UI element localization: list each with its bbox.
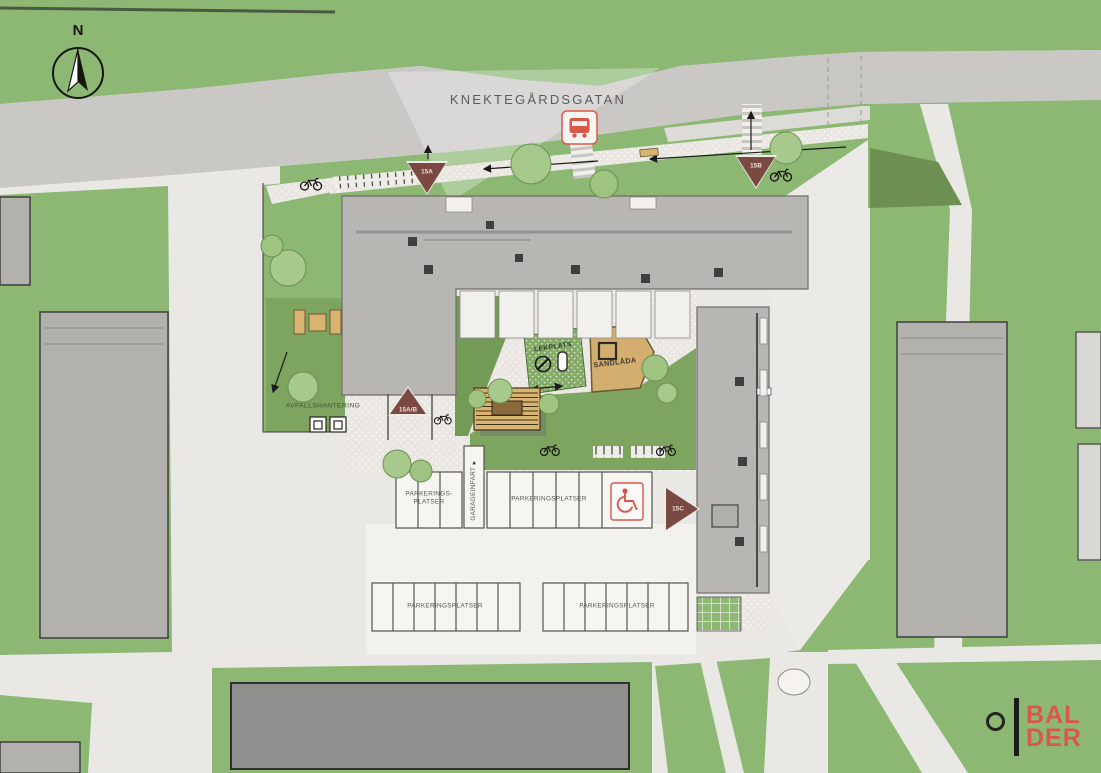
- picnic-bench-icon: [294, 310, 305, 334]
- bus-stop-icon: [562, 111, 597, 144]
- entrance-15ab-label: 15A/B: [392, 406, 424, 413]
- north-arrow: N: [46, 22, 110, 112]
- balder-logo: BAL DER: [986, 698, 1082, 756]
- logo-ring-icon: [986, 712, 1005, 731]
- entrance-marker-15c: 15C: [664, 486, 700, 532]
- pond: [778, 669, 810, 695]
- pedestrian-crossing: [742, 104, 762, 160]
- picnic-bench-icon: [330, 310, 341, 334]
- entrance-marker-15a: 15A: [406, 161, 448, 197]
- entrance-15c-label: 15C: [664, 505, 693, 512]
- site-plan: N KNEKTEGÅRDSGATAN LEKPLATS SANDLÅDA AVF…: [0, 0, 1101, 773]
- entrance-marker-15ab: 15A/B: [388, 386, 428, 416]
- entrance-15b-label: 15B: [739, 162, 773, 169]
- entrance-15a-label: 15A: [410, 168, 444, 175]
- north-arrow-icon: [46, 39, 110, 107]
- picnic-table-icon: [309, 314, 326, 331]
- garage-ramp: [464, 446, 484, 528]
- main-building-east-wing: [697, 307, 769, 593]
- accessible-parking-icon: [611, 483, 643, 520]
- site-plan-graphics: [0, 0, 1101, 773]
- playground-spring-rider-icon: [558, 352, 567, 371]
- grass-paver-grid: [697, 597, 741, 631]
- logo-text-line2: DER: [1026, 727, 1082, 750]
- entrance-marker-15b: 15B: [735, 155, 777, 191]
- compass-north-label: N: [46, 22, 110, 39]
- bicycle-rack-icon: [593, 446, 623, 458]
- logo-bar: [1014, 698, 1019, 756]
- bench-icon: [640, 148, 659, 157]
